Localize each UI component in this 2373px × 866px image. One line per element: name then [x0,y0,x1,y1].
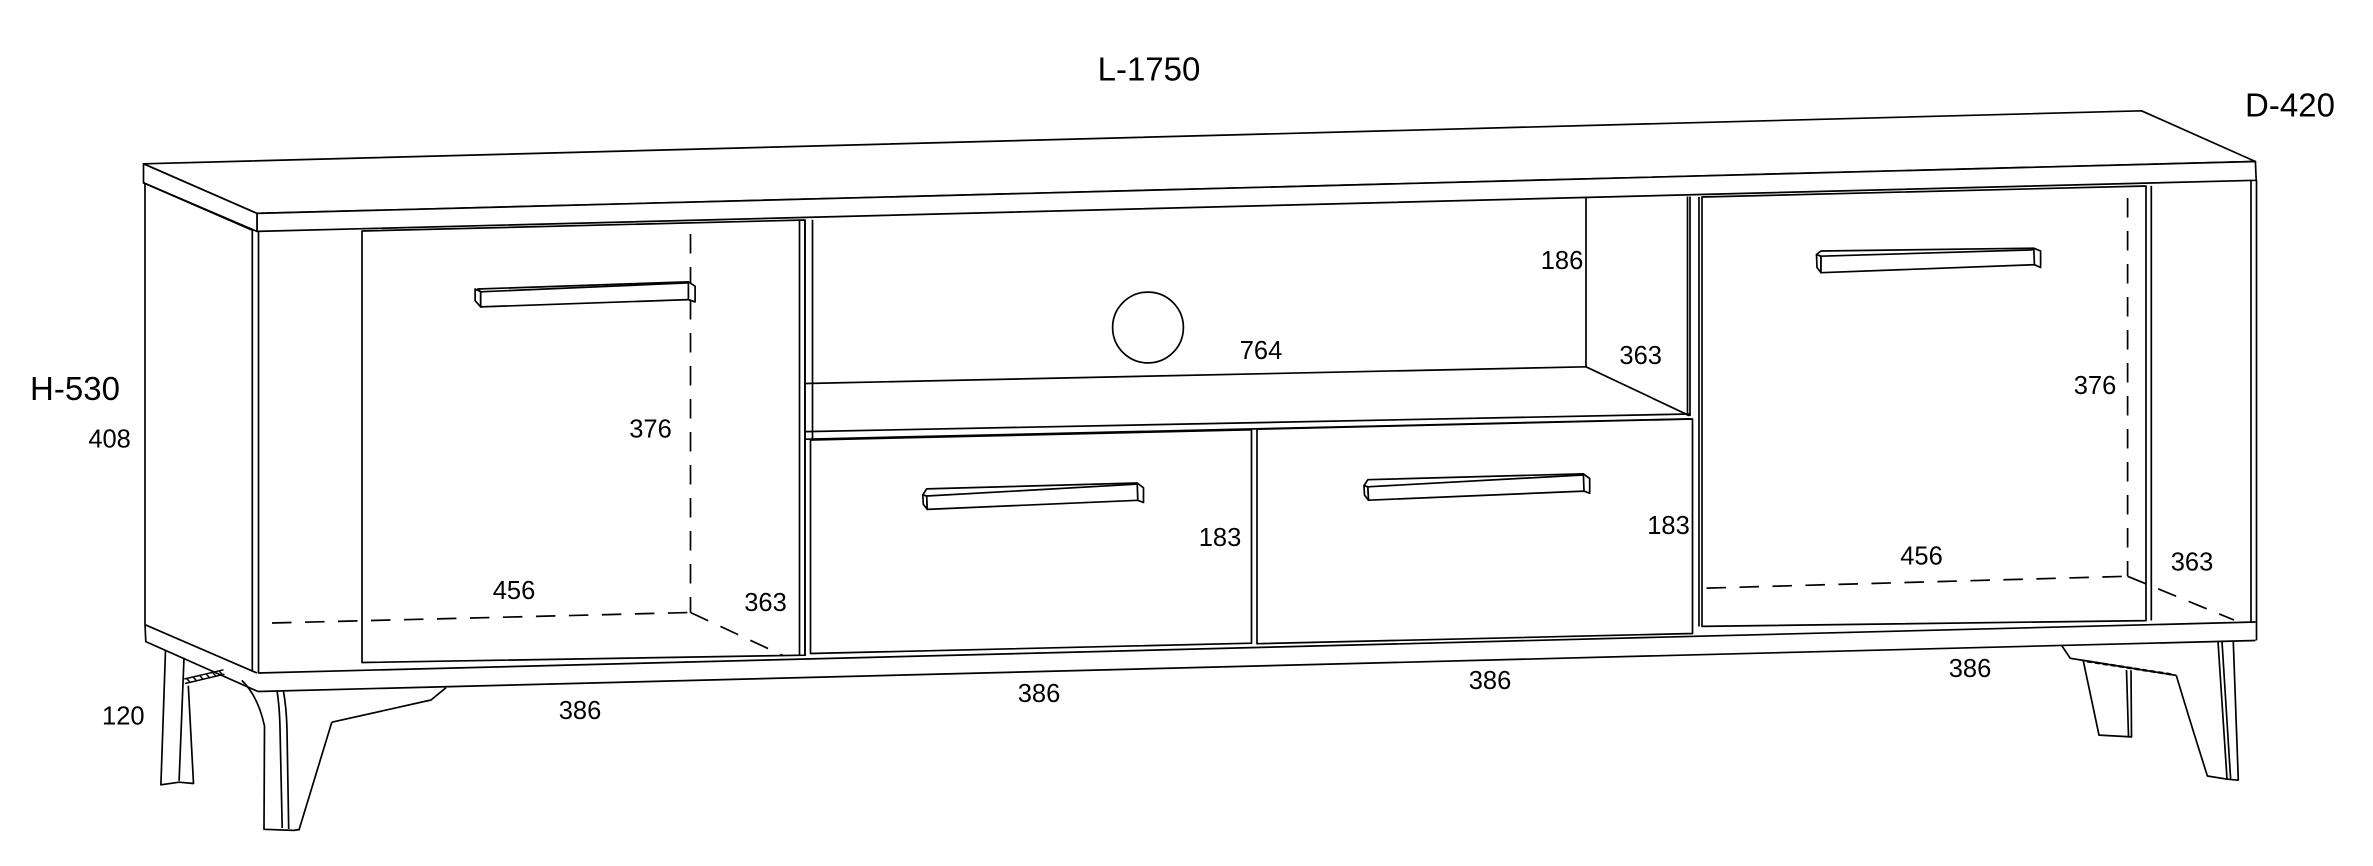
svg-text:386: 386 [559,697,602,725]
svg-text:363: 363 [1619,342,1662,370]
svg-text:456: 456 [1900,543,1943,571]
svg-text:186: 186 [1541,247,1584,275]
svg-text:386: 386 [1949,655,1992,683]
svg-text:386: 386 [1469,667,1512,695]
svg-text:363: 363 [744,589,787,617]
svg-text:183: 183 [1647,512,1690,540]
svg-text:408: 408 [88,426,131,454]
svg-text:H-530: H-530 [30,370,120,407]
svg-text:376: 376 [2074,372,2117,400]
svg-text:386: 386 [1018,680,1061,708]
svg-text:456: 456 [493,577,536,605]
svg-text:363: 363 [2171,548,2214,576]
svg-text:L-1750: L-1750 [1098,51,1201,88]
svg-text:D-420: D-420 [2245,87,2335,124]
svg-text:120: 120 [102,703,145,731]
svg-text:376: 376 [629,415,672,443]
svg-text:183: 183 [1199,524,1242,552]
svg-text:764: 764 [1240,337,1283,365]
